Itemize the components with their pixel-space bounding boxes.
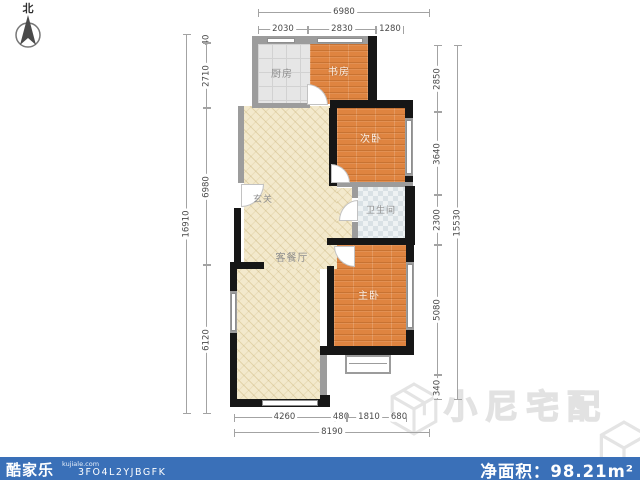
wall-left-lower-1 — [230, 269, 237, 291]
plan-code: 3FO4L2YJBGFK — [78, 467, 166, 478]
net-area-value: 98.21m² — [550, 462, 634, 480]
wall-kitchen-left — [252, 44, 258, 106]
wall-bathroom-right — [405, 186, 415, 244]
net-area: 净面积：98.21m² — [480, 458, 634, 480]
dim-bottom-seg: 480 — [335, 417, 347, 418]
kitchen-window — [267, 38, 295, 43]
kitchen-label: 厨房 — [262, 70, 302, 80]
bedroom2-window — [406, 120, 412, 174]
watermark-text: 小尼宅配 — [444, 390, 608, 423]
wall-left-notch — [230, 262, 264, 269]
bathroom-label: 卫生间 — [356, 207, 406, 216]
wall-master-left — [327, 266, 334, 352]
compass: 北 — [8, 3, 48, 54]
master-bedroom-label: 主卧 — [349, 292, 389, 302]
wall-master-right-top — [406, 244, 414, 262]
wall-living-right-corner — [320, 395, 330, 407]
study-label: 书房 — [319, 68, 359, 78]
compass-arrow-icon — [11, 14, 45, 50]
study-window — [317, 38, 363, 43]
dim-bottom-seg: 4260 — [234, 417, 335, 418]
wall-entry-top — [234, 208, 241, 224]
kujiale-logo: 酷家乐 — [6, 459, 54, 480]
dim-top-seg: 2830 — [308, 29, 376, 30]
dim-bottom-seg: 680 — [391, 417, 407, 418]
wall-master-bottom — [320, 346, 414, 355]
living-left-window — [231, 293, 236, 331]
dim-left-overall: 16910 — [186, 34, 187, 414]
master-window — [407, 264, 413, 328]
living-dining-label: 客餐厅 — [262, 254, 322, 264]
second-bedroom-floor — [337, 108, 405, 182]
master-bay-window-bar — [349, 363, 387, 364]
wall-kitchen-bottom — [252, 103, 310, 108]
floorplan-canvas: 小尼宅配 北 — [0, 0, 640, 480]
wall-entry-bottom — [234, 224, 241, 262]
dim-left-seg: 6120 — [206, 265, 207, 414]
dim-bottom-seg: 1810 — [347, 417, 391, 418]
dim-right-seg: 340 — [437, 375, 438, 400]
wall-master-top-stub — [327, 238, 352, 245]
compass-north-label: 北 — [8, 3, 48, 14]
entrance-label: 玄关 — [245, 196, 281, 205]
dim-top-seg: 1280 — [376, 29, 404, 30]
dim-left-seg: 40 — [206, 36, 207, 43]
wall-study-right — [368, 36, 377, 106]
dim-left-seg: 6980 — [206, 108, 207, 265]
wall-living-left-upper — [238, 106, 244, 183]
living-floor-lower — [237, 269, 320, 399]
dim-right-seg: 2850 — [437, 45, 438, 112]
wall-bedroom2-right-top — [405, 108, 413, 118]
dim-right-seg: 2300 — [437, 195, 438, 245]
second-bedroom-label: 次卧 — [351, 135, 391, 145]
wall-bedroom2-top — [330, 100, 413, 108]
dim-top-overall: 6980 — [258, 12, 430, 13]
living-bottom-window — [262, 400, 318, 406]
master-bay-window — [345, 355, 391, 374]
wall-left-lower-2 — [230, 333, 237, 399]
dim-right-seg: 3640 — [437, 112, 438, 195]
net-area-label: 净面积： — [480, 462, 550, 480]
dim-right-overall: 15530 — [457, 45, 458, 400]
dim-right-seg: 5080 — [437, 245, 438, 375]
wall-living-right-lower — [320, 355, 327, 399]
footer-bar: 酷家乐 kujiale.com 3FO4L2YJBGFK 净面积：98.21m² — [0, 457, 640, 480]
dim-left-seg: 2710 — [206, 43, 207, 108]
dim-bottom-overall: 8190 — [234, 432, 430, 433]
dim-top-seg: 2030 — [258, 29, 308, 30]
